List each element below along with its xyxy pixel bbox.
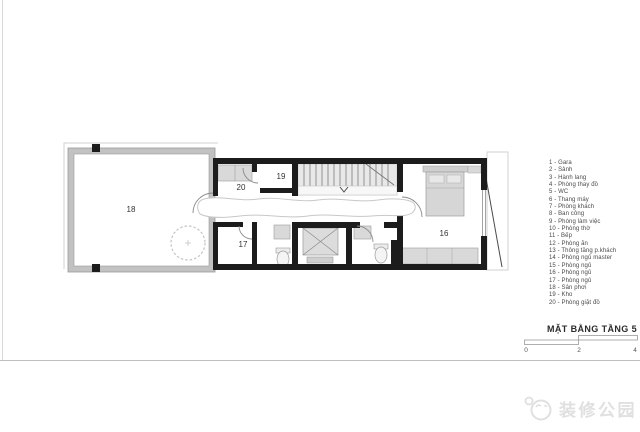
- legend-item: 7 - Phòng khách: [549, 204, 637, 211]
- legend-item: 3 - Hành lang: [549, 175, 637, 182]
- legend-item: 4 - Phòng thay đồ: [549, 182, 637, 189]
- elevator-cab: [303, 228, 338, 263]
- legend-item: 9 - Phòng làm việc: [549, 219, 637, 226]
- watermark: 装修公园: [523, 394, 637, 422]
- legend-item: 8 - Ban công: [549, 211, 637, 218]
- bed: [423, 166, 481, 216]
- room-label-20: 20: [237, 183, 246, 192]
- plan-title: MẶT BẰNG TẦNG 5: [477, 324, 637, 334]
- legend-item: 5 - WC: [549, 189, 637, 196]
- room-label-17: 17: [239, 240, 248, 249]
- window-right: [483, 190, 486, 236]
- legend-item: 14 - Phòng ngủ master: [549, 255, 637, 262]
- scale-bar: 0 2 4: [524, 334, 638, 354]
- room-label-18: 18: [127, 205, 136, 214]
- legend-item: 12 - Phòng ăn: [549, 241, 637, 248]
- legend-item: 2 - Sảnh: [549, 167, 637, 174]
- legend-item: 20 - Phòng giặt đồ: [549, 300, 637, 307]
- scale-tick-4: 4: [633, 347, 637, 354]
- watermark-logo-icon: [523, 394, 555, 422]
- legend-item: 19 - Kho: [549, 292, 637, 299]
- void-break-band: [198, 198, 416, 218]
- legend-item: 18 - Sân phơi: [549, 285, 637, 292]
- legend-item: 1 - Gara: [549, 160, 637, 167]
- wardrobe: [402, 248, 478, 264]
- scale-tick-0: 0: [524, 347, 528, 354]
- legend-item: 16 - Phòng ngủ: [549, 270, 637, 277]
- title-block: MẶT BẰNG TẦNG 5: [477, 324, 637, 334]
- legend-item: 17 - Phòng ngủ: [549, 278, 637, 285]
- watermark-text: 装修公园: [559, 396, 637, 421]
- legend-item: 6 - Thang máy: [549, 197, 637, 204]
- room-label-16: 16: [440, 229, 449, 238]
- floor-plan-drawing: 18 20 19 17 16: [0, 0, 640, 432]
- room-legend: 1 - Gara 2 - Sảnh 3 - Hành lang 4 - Phòn…: [549, 160, 637, 307]
- scale-tick-2: 2: [577, 347, 581, 354]
- legend-item: 11 - Bếp: [549, 233, 637, 240]
- legend-item: 10 - Phòng thờ: [549, 226, 637, 233]
- staircase: [298, 164, 397, 195]
- room-label-19: 19: [277, 172, 286, 181]
